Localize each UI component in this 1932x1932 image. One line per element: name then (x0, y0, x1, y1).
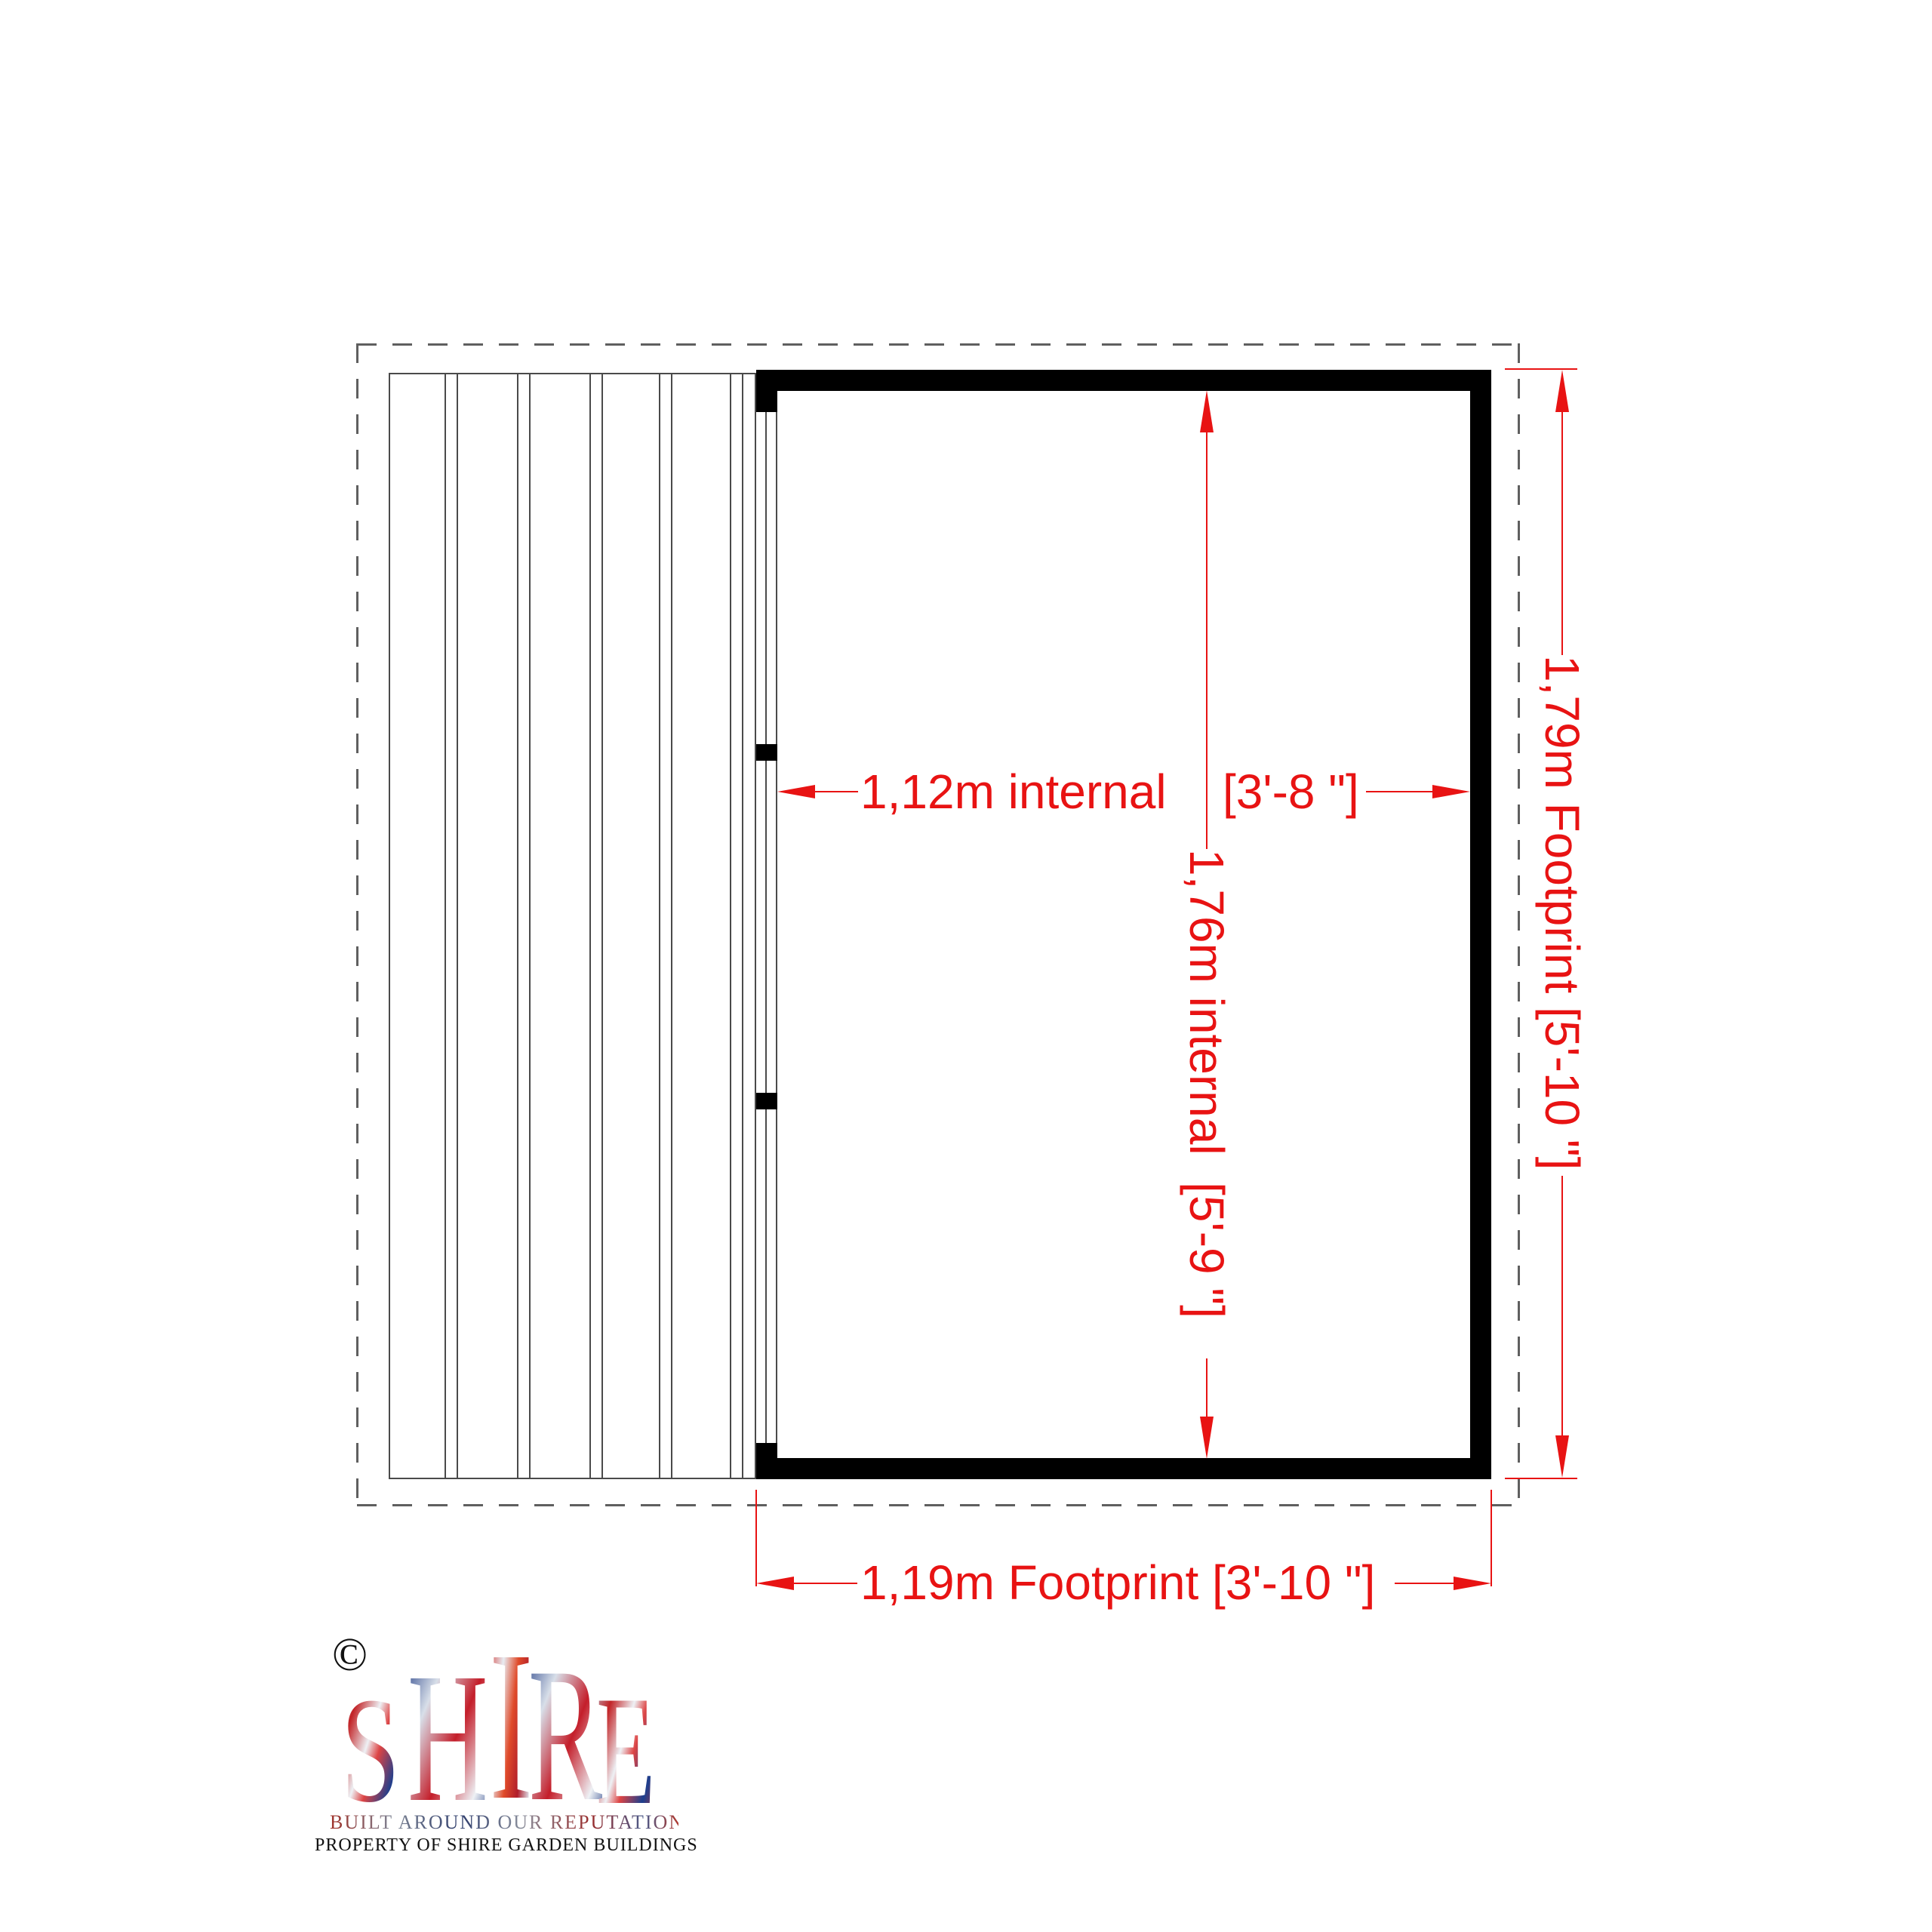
dim-line (794, 1583, 857, 1584)
footprint-outline-right (1518, 343, 1520, 1506)
door-frame-line (765, 391, 767, 1458)
dim-arrow-right-footprint-width (1454, 1577, 1491, 1590)
dim-arrow-down-internal-depth (1200, 1417, 1214, 1459)
cladding-board-line (589, 374, 591, 1478)
logo-tagline: BUILT AROUND OUR REPUTATION (330, 1811, 678, 1834)
door-hinge-block (756, 744, 777, 761)
wall-right (1470, 370, 1491, 1479)
footprint-outline-bottom (357, 1504, 1519, 1506)
dim-line (1206, 1358, 1207, 1417)
cladding-panel (389, 373, 756, 1479)
internal-width-imperial-label: [3'-8 "] (1223, 767, 1359, 817)
dim-line (1395, 1583, 1454, 1584)
dim-arrow-left-internal-width (777, 785, 815, 798)
door-frame-line (776, 391, 777, 1458)
door-hinge-block (756, 391, 777, 412)
cladding-board-line (529, 374, 531, 1478)
dim-arrow-up-footprint-depth (1555, 370, 1569, 412)
door-hinge-block (756, 1093, 777, 1109)
cladding-board-line (457, 374, 458, 1478)
logo-letter-r: R (528, 1639, 602, 1831)
dim-extension (755, 1490, 757, 1586)
dim-extension (1491, 1490, 1492, 1586)
logo-letter-e: E (596, 1672, 655, 1829)
footprint-outline-left (356, 343, 358, 1506)
cladding-board-line (659, 374, 660, 1478)
footprint-width-label: 1,19m Footprint [3'-10 "] (860, 1558, 1375, 1607)
property-of-line: PROPERTY OF SHIRE GARDEN BUILDINGS (315, 1835, 694, 1856)
internal-width-metric-label: 1,12m internal (860, 767, 1167, 817)
logo-letter-i: I (489, 1619, 534, 1833)
dim-line (815, 791, 858, 792)
footprint-outline-top (357, 343, 1519, 346)
wall-top (756, 370, 1491, 391)
dim-tick (1505, 1478, 1577, 1479)
dim-arrow-left-footprint-width (756, 1577, 794, 1590)
footprint-depth-label: 1,79m Footprint [5'-10 "] (1537, 655, 1587, 1170)
cladding-board-line (671, 374, 672, 1478)
dim-line (1366, 791, 1432, 792)
cladding-board-line (601, 374, 603, 1478)
wall-bottom (756, 1458, 1491, 1479)
dim-line (1561, 1176, 1563, 1435)
cladding-board-line (742, 374, 743, 1478)
cladding-board-line (730, 374, 731, 1478)
internal-depth-label: 1,76m internal [5'-9 "] (1182, 849, 1232, 1318)
cladding-board-line (445, 374, 446, 1478)
cladding-board-line (517, 374, 518, 1478)
plan-drawing-canvas: 1,12m internal [3'-8 "] 1,76m internal [… (0, 0, 1932, 1932)
dim-arrow-right-internal-width (1432, 785, 1470, 798)
door-hinge-block (756, 1443, 777, 1458)
dim-line (1561, 412, 1563, 655)
dim-arrow-down-footprint-depth (1555, 1435, 1569, 1478)
dim-line (1206, 432, 1207, 849)
logo-letter-h: H (408, 1645, 488, 1831)
logo-letter-s: S (341, 1675, 400, 1826)
dim-arrow-up-internal-depth (1200, 390, 1214, 432)
